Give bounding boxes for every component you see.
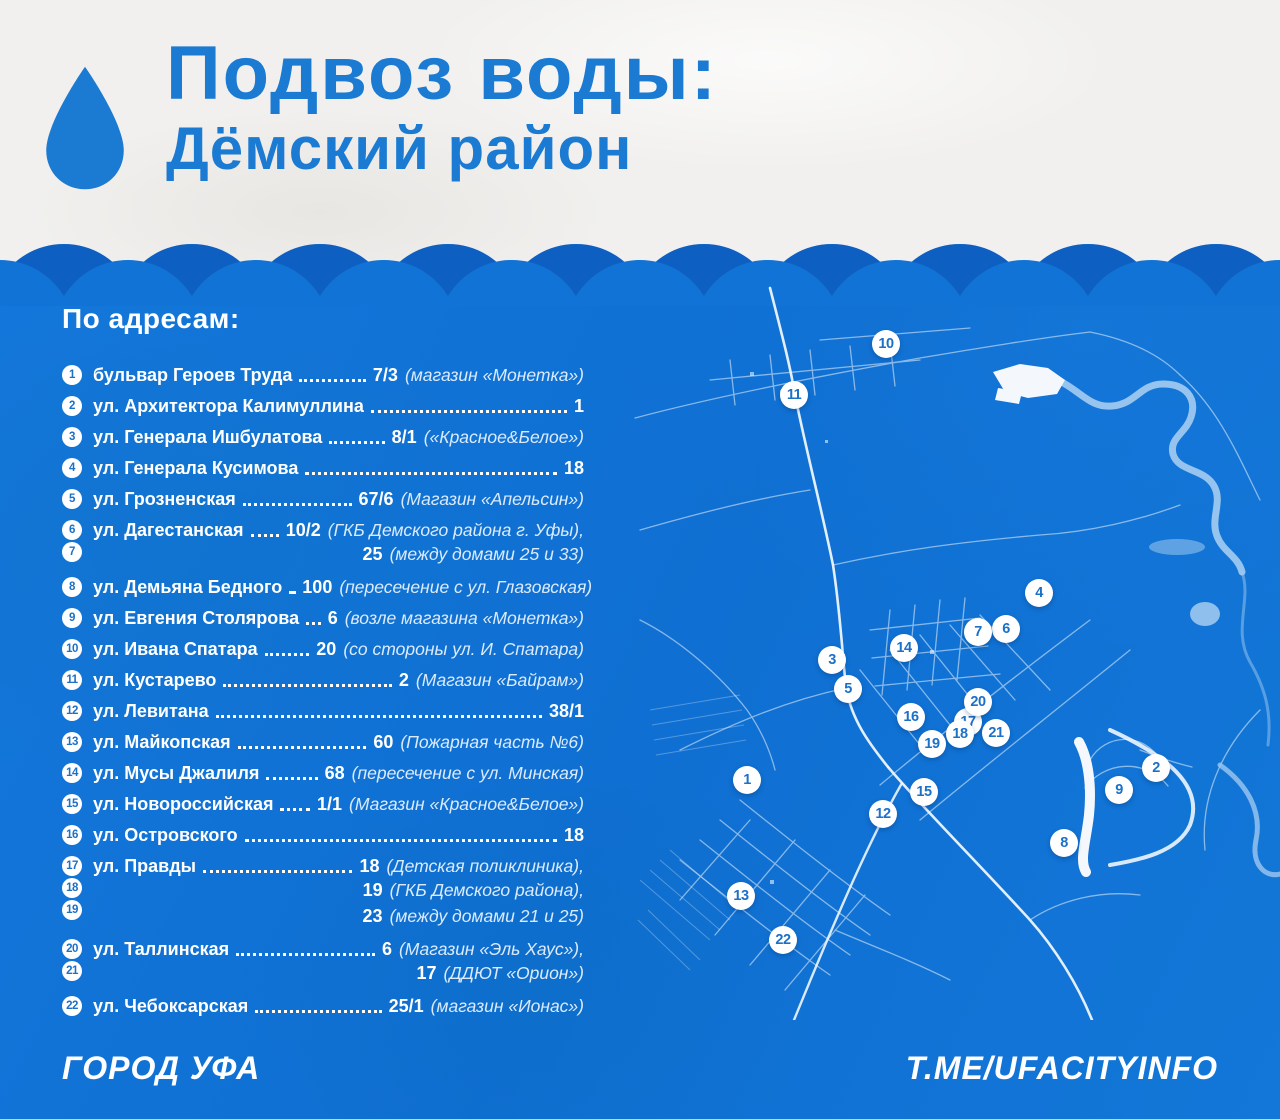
map-marker-9: 9 <box>1105 776 1133 804</box>
street-name: бульвар Героев Труда <box>93 363 292 387</box>
dotted-leader <box>203 870 352 873</box>
address-list-item: 12 ул. Левитана 38/1 <box>62 699 584 723</box>
street-name: ул. Новороссийская <box>93 792 273 816</box>
address-list: 1 бульвар Героев Труда 7/3 (магазин «Мон… <box>62 363 584 1018</box>
badge-column: 1 <box>62 363 82 385</box>
address-line: ул. Чебоксарская 25/1 (магазин «Ионас») <box>93 994 584 1018</box>
house-number: 19 <box>363 880 383 900</box>
title-block: Подвоз воды: Дёмский район <box>166 36 718 182</box>
water-drop-icon <box>34 52 136 204</box>
address-entry: ул. Чебоксарская 25/1 (магазин «Ионас») <box>93 994 584 1018</box>
list-badge-7: 7 <box>62 542 82 562</box>
house-number: 38/1 <box>549 699 584 723</box>
dotted-leader <box>265 653 310 656</box>
map-marker-22: 22 <box>769 926 797 954</box>
address-line: ул. Островского 18 <box>93 823 584 847</box>
list-badge-2: 2 <box>62 396 82 416</box>
address-entry: ул. Генерала Кусимова 18 <box>93 456 584 480</box>
map-marker-18: 18 <box>946 720 974 748</box>
list-badge-6: 6 <box>62 520 82 540</box>
address-entry: бульвар Героев Труда 7/3 (магазин «Монет… <box>93 363 584 387</box>
dotted-leader <box>238 746 367 749</box>
address-line: ул. Таллинская 6 (Магазин «Эль Хаус»), <box>93 937 584 961</box>
location-note: (Детская поликлиника), <box>386 854 584 878</box>
address-list-item: 5 ул. Грозненская 67/6 (Магазин «Апельси… <box>62 487 584 511</box>
location-note: (пересечение с ул. Глазовская) <box>339 575 592 599</box>
dotted-leader <box>299 379 365 382</box>
dotted-leader <box>266 777 317 780</box>
list-badge-22: 22 <box>62 996 82 1016</box>
house-number: 1/1 <box>317 792 342 816</box>
location-note: (Пожарная часть №6) <box>400 730 584 754</box>
location-note: (возле магазина «Монетка») <box>345 606 584 630</box>
house-number: 17 <box>416 963 436 983</box>
location-note: (ГКБ Демского района г. Уфы), <box>328 518 584 542</box>
address-list-item: 13 ул. Майкопская 60 (Пожарная часть №6) <box>62 730 584 754</box>
street-name: ул. Таллинская <box>93 937 229 961</box>
house-number: 67/6 <box>359 487 394 511</box>
list-badge-20: 20 <box>62 939 82 959</box>
list-badge-15: 15 <box>62 794 82 814</box>
dotted-leader <box>251 534 279 537</box>
badge-column: 12 <box>62 699 82 721</box>
map-marker-21: 21 <box>982 719 1010 747</box>
street-name: ул. Чебоксарская <box>93 994 248 1018</box>
address-extra-line: 23(между домами 21 и 25) <box>93 904 584 930</box>
map-marker-7: 7 <box>964 618 992 646</box>
address-entry: ул. Левитана 38/1 <box>93 699 584 723</box>
badge-column: 2 <box>62 394 82 416</box>
address-entry: ул. Дагестанская 10/2 (ГКБ Демского райо… <box>93 518 584 568</box>
address-list-item: 8 ул. Демьяна Бедного 100 (пересечение с… <box>62 575 584 599</box>
dotted-leader <box>223 684 391 687</box>
badge-column: 9 <box>62 606 82 628</box>
header: Подвоз воды: Дёмский район <box>0 0 1280 240</box>
location-note: (магазин «Монетка») <box>405 363 584 387</box>
map-marker-1: 1 <box>733 766 761 794</box>
badge-column: 2021 <box>62 937 82 981</box>
location-note: (ГКБ Демского района), <box>390 880 584 900</box>
dotted-leader <box>236 953 375 956</box>
address-line: бульвар Героев Труда 7/3 (магазин «Монет… <box>93 363 584 387</box>
address-extra-line: 19(ГКБ Демского района), <box>93 878 584 904</box>
address-line: ул. Кустарево 2 (Магазин «Байрам») <box>93 668 584 692</box>
list-heading: По адресам: <box>62 303 584 335</box>
location-note: (со стороны ул. И. Спатара) <box>343 637 584 661</box>
badge-column: 67 <box>62 518 82 562</box>
street-name: ул. Правды <box>93 854 196 878</box>
dotted-leader <box>245 839 557 842</box>
street-name: ул. Майкопская <box>93 730 231 754</box>
dotted-leader <box>280 808 310 811</box>
location-note: (между домами 21 и 25) <box>390 906 584 926</box>
list-badge-18: 18 <box>62 878 82 898</box>
map-marker-19: 19 <box>918 730 946 758</box>
street-name: ул. Демьяна Бедного <box>93 575 282 599</box>
street-name: ул. Ивана Спатара <box>93 637 258 661</box>
address-entry: ул. Майкопская 60 (Пожарная часть №6) <box>93 730 584 754</box>
house-number: 23 <box>363 906 383 926</box>
dotted-leader <box>329 441 384 444</box>
house-number: 18 <box>564 823 584 847</box>
street-name: ул. Генерала Кусимова <box>93 456 298 480</box>
map-marker-3: 3 <box>818 646 846 674</box>
address-list-item: 4 ул. Генерала Кусимова 18 <box>62 456 584 480</box>
dotted-leader <box>305 472 557 475</box>
map-marker-13: 13 <box>727 882 755 910</box>
address-list-item: 22 ул. Чебоксарская 25/1 (магазин «Ионас… <box>62 994 584 1018</box>
street-name: ул. Левитана <box>93 699 209 723</box>
house-number: 25 <box>363 544 383 564</box>
badge-column: 16 <box>62 823 82 845</box>
house-number: 1 <box>574 394 584 418</box>
address-list-item: 171819 ул. Правды 18 (Детская поликлиник… <box>62 854 584 930</box>
address-entry: ул. Кустарево 2 (Магазин «Байрам») <box>93 668 584 692</box>
map-marker-2: 2 <box>1142 754 1170 782</box>
street-name: ул. Архитектора Калимуллина <box>93 394 364 418</box>
address-line: ул. Правды 18 (Детская поликлиника), <box>93 854 584 878</box>
house-number: 100 <box>302 575 332 599</box>
location-note: («Красное&Белое») <box>424 425 584 449</box>
house-number: 10/2 <box>286 518 321 542</box>
address-line: ул. Левитана 38/1 <box>93 699 584 723</box>
badge-column: 3 <box>62 425 82 447</box>
badge-column: 14 <box>62 761 82 783</box>
address-entry: ул. Евгения Столярова 6 (возле магазина … <box>93 606 584 630</box>
location-note: (между домами 25 и 33) <box>390 544 584 564</box>
house-number: 18 <box>359 854 379 878</box>
map-artwork <box>620 280 1280 1020</box>
dotted-leader <box>243 503 352 506</box>
list-badge-4: 4 <box>62 458 82 478</box>
dotted-leader <box>289 591 295 594</box>
list-badge-9: 9 <box>62 608 82 628</box>
address-list-item: 15 ул. Новороссийская 1/1 (Магазин «Крас… <box>62 792 584 816</box>
map-marker-12: 12 <box>869 800 897 828</box>
address-line: ул. Майкопская 60 (Пожарная часть №6) <box>93 730 584 754</box>
footer-telegram-link[interactable]: T.ME/UFACITYINFO <box>906 1050 1218 1087</box>
map-marker-16: 16 <box>897 703 925 731</box>
address-line: ул. Ивана Спатара 20 (со стороны ул. И. … <box>93 637 584 661</box>
address-line: ул. Генерала Кусимова 18 <box>93 456 584 480</box>
house-number: 60 <box>373 730 393 754</box>
list-badge-8: 8 <box>62 577 82 597</box>
house-number: 20 <box>316 637 336 661</box>
address-list-item: 10 ул. Ивана Спатара 20 (со стороны ул. … <box>62 637 584 661</box>
house-number: 6 <box>328 606 338 630</box>
dotted-leader <box>371 410 567 413</box>
list-badge-5: 5 <box>62 489 82 509</box>
footer-city-label: ГОРОД УФА <box>62 1050 260 1087</box>
house-number: 2 <box>399 668 409 692</box>
location-note: (ДДЮТ «Орион») <box>444 963 584 983</box>
badge-column: 10 <box>62 637 82 659</box>
list-badge-10: 10 <box>62 639 82 659</box>
address-entry: ул. Правды 18 (Детская поликлиника), 19(… <box>93 854 584 930</box>
address-line: ул. Дагестанская 10/2 (ГКБ Демского райо… <box>93 518 584 542</box>
address-entry: ул. Генерала Ишбулатова 8/1 («Красное&Бе… <box>93 425 584 449</box>
badge-column: 8 <box>62 575 82 597</box>
address-entry: ул. Грозненская 67/6 (Магазин «Апельсин»… <box>93 487 584 511</box>
address-entry: ул. Таллинская 6 (Магазин «Эль Хаус»), 1… <box>93 937 584 987</box>
badge-column: 5 <box>62 487 82 509</box>
address-panel: По адресам: 1 бульвар Героев Труда 7/3 (… <box>62 303 584 1018</box>
address-list-item: 9 ул. Евгения Столярова 6 (возле магазин… <box>62 606 584 630</box>
map-marker-14: 14 <box>890 634 918 662</box>
list-badge-14: 14 <box>62 763 82 783</box>
address-list-item: 1 бульвар Героев Труда 7/3 (магазин «Мон… <box>62 363 584 387</box>
list-badge-1: 1 <box>62 365 82 385</box>
address-entry: ул. Мусы Джалиля 68 (пересечение с ул. М… <box>93 761 584 785</box>
list-badge-19: 19 <box>62 900 82 920</box>
address-list-item: 2 ул. Архитектора Калимуллина 1 <box>62 394 584 418</box>
address-list-item: 14 ул. Мусы Джалиля 68 (пересечение с ул… <box>62 761 584 785</box>
map-marker-6: 6 <box>992 615 1020 643</box>
badge-column: 13 <box>62 730 82 752</box>
house-number: 25/1 <box>389 994 424 1018</box>
address-line: ул. Грозненская 67/6 (Магазин «Апельсин»… <box>93 487 584 511</box>
list-badge-3: 3 <box>62 427 82 447</box>
address-list-item: 67 ул. Дагестанская 10/2 (ГКБ Демского р… <box>62 518 584 568</box>
water-delivery-poster: Подвоз воды: Дёмский район По адресам: 1… <box>0 0 1280 1119</box>
house-number: 68 <box>325 761 345 785</box>
address-line: ул. Архитектора Калимуллина 1 <box>93 394 584 418</box>
address-list-item: 16 ул. Островского 18 <box>62 823 584 847</box>
footer: ГОРОД УФА T.ME/UFACITYINFO <box>62 1050 1218 1087</box>
location-note: (пересечение с ул. Минская) <box>352 761 584 785</box>
address-entry: ул. Островского 18 <box>93 823 584 847</box>
street-name: ул. Грозненская <box>93 487 236 511</box>
address-entry: ул. Архитектора Калимуллина 1 <box>93 394 584 418</box>
location-note: (магазин «Ионас») <box>431 994 584 1018</box>
street-name: ул. Генерала Ишбулатова <box>93 425 322 449</box>
page-title: Подвоз воды: <box>166 36 718 112</box>
address-entry: ул. Новороссийская 1/1 (Магазин «Красное… <box>93 792 584 816</box>
address-line: ул. Демьяна Бедного 100 (пересечение с у… <box>93 575 584 599</box>
location-note: (Магазин «Эль Хаус»), <box>399 937 584 961</box>
map-marker-15: 15 <box>910 778 938 806</box>
address-list-item: 11 ул. Кустарево 2 (Магазин «Байрам») <box>62 668 584 692</box>
district-map: 12345678910111213141516171819202122 <box>620 280 1280 1020</box>
location-note: (Магазин «Красное&Белое») <box>349 792 584 816</box>
street-name: ул. Евгения Столярова <box>93 606 299 630</box>
map-marker-10: 10 <box>872 330 900 358</box>
location-note: (Магазин «Байрам») <box>416 668 584 692</box>
badge-column: 15 <box>62 792 82 814</box>
address-line: ул. Новороссийская 1/1 (Магазин «Красное… <box>93 792 584 816</box>
street-name: ул. Островского <box>93 823 238 847</box>
dotted-leader <box>216 715 542 718</box>
dotted-leader <box>306 622 321 625</box>
address-list-item: 3 ул. Генерала Ишбулатова 8/1 («Красное&… <box>62 425 584 449</box>
location-note: (Магазин «Апельсин») <box>401 487 584 511</box>
page-subtitle: Дёмский район <box>166 116 718 182</box>
list-badge-13: 13 <box>62 732 82 752</box>
address-line: ул. Генерала Ишбулатова 8/1 («Красное&Бе… <box>93 425 584 449</box>
badge-column: 11 <box>62 668 82 690</box>
address-line: ул. Евгения Столярова 6 (возле магазина … <box>93 606 584 630</box>
address-extra-line: 17(ДДЮТ «Орион») <box>93 961 584 987</box>
list-badge-16: 16 <box>62 825 82 845</box>
list-badge-17: 17 <box>62 856 82 876</box>
badge-column: 22 <box>62 994 82 1016</box>
address-entry: ул. Ивана Спатара 20 (со стороны ул. И. … <box>93 637 584 661</box>
map-marker-8: 8 <box>1050 829 1078 857</box>
address-list-item: 2021 ул. Таллинская 6 (Магазин «Эль Хаус… <box>62 937 584 987</box>
street-name: ул. Мусы Джалиля <box>93 761 259 785</box>
list-badge-12: 12 <box>62 701 82 721</box>
house-number: 8/1 <box>392 425 417 449</box>
badge-column: 171819 <box>62 854 82 920</box>
map-marker-11: 11 <box>780 381 808 409</box>
dotted-leader <box>255 1010 381 1013</box>
address-extra-line: 25(между домами 25 и 33) <box>93 542 584 568</box>
address-line: ул. Мусы Джалиля 68 (пересечение с ул. М… <box>93 761 584 785</box>
map-marker-20: 20 <box>964 688 992 716</box>
address-entry: ул. Демьяна Бедного 100 (пересечение с у… <box>93 575 584 599</box>
map-marker-4: 4 <box>1025 579 1053 607</box>
street-name: ул. Дагестанская <box>93 518 244 542</box>
house-number: 18 <box>564 456 584 480</box>
house-number: 7/3 <box>373 363 398 387</box>
list-badge-11: 11 <box>62 670 82 690</box>
badge-column: 4 <box>62 456 82 478</box>
map-marker-5: 5 <box>834 675 862 703</box>
house-number: 6 <box>382 937 392 961</box>
list-badge-21: 21 <box>62 961 82 981</box>
street-name: ул. Кустарево <box>93 668 216 692</box>
